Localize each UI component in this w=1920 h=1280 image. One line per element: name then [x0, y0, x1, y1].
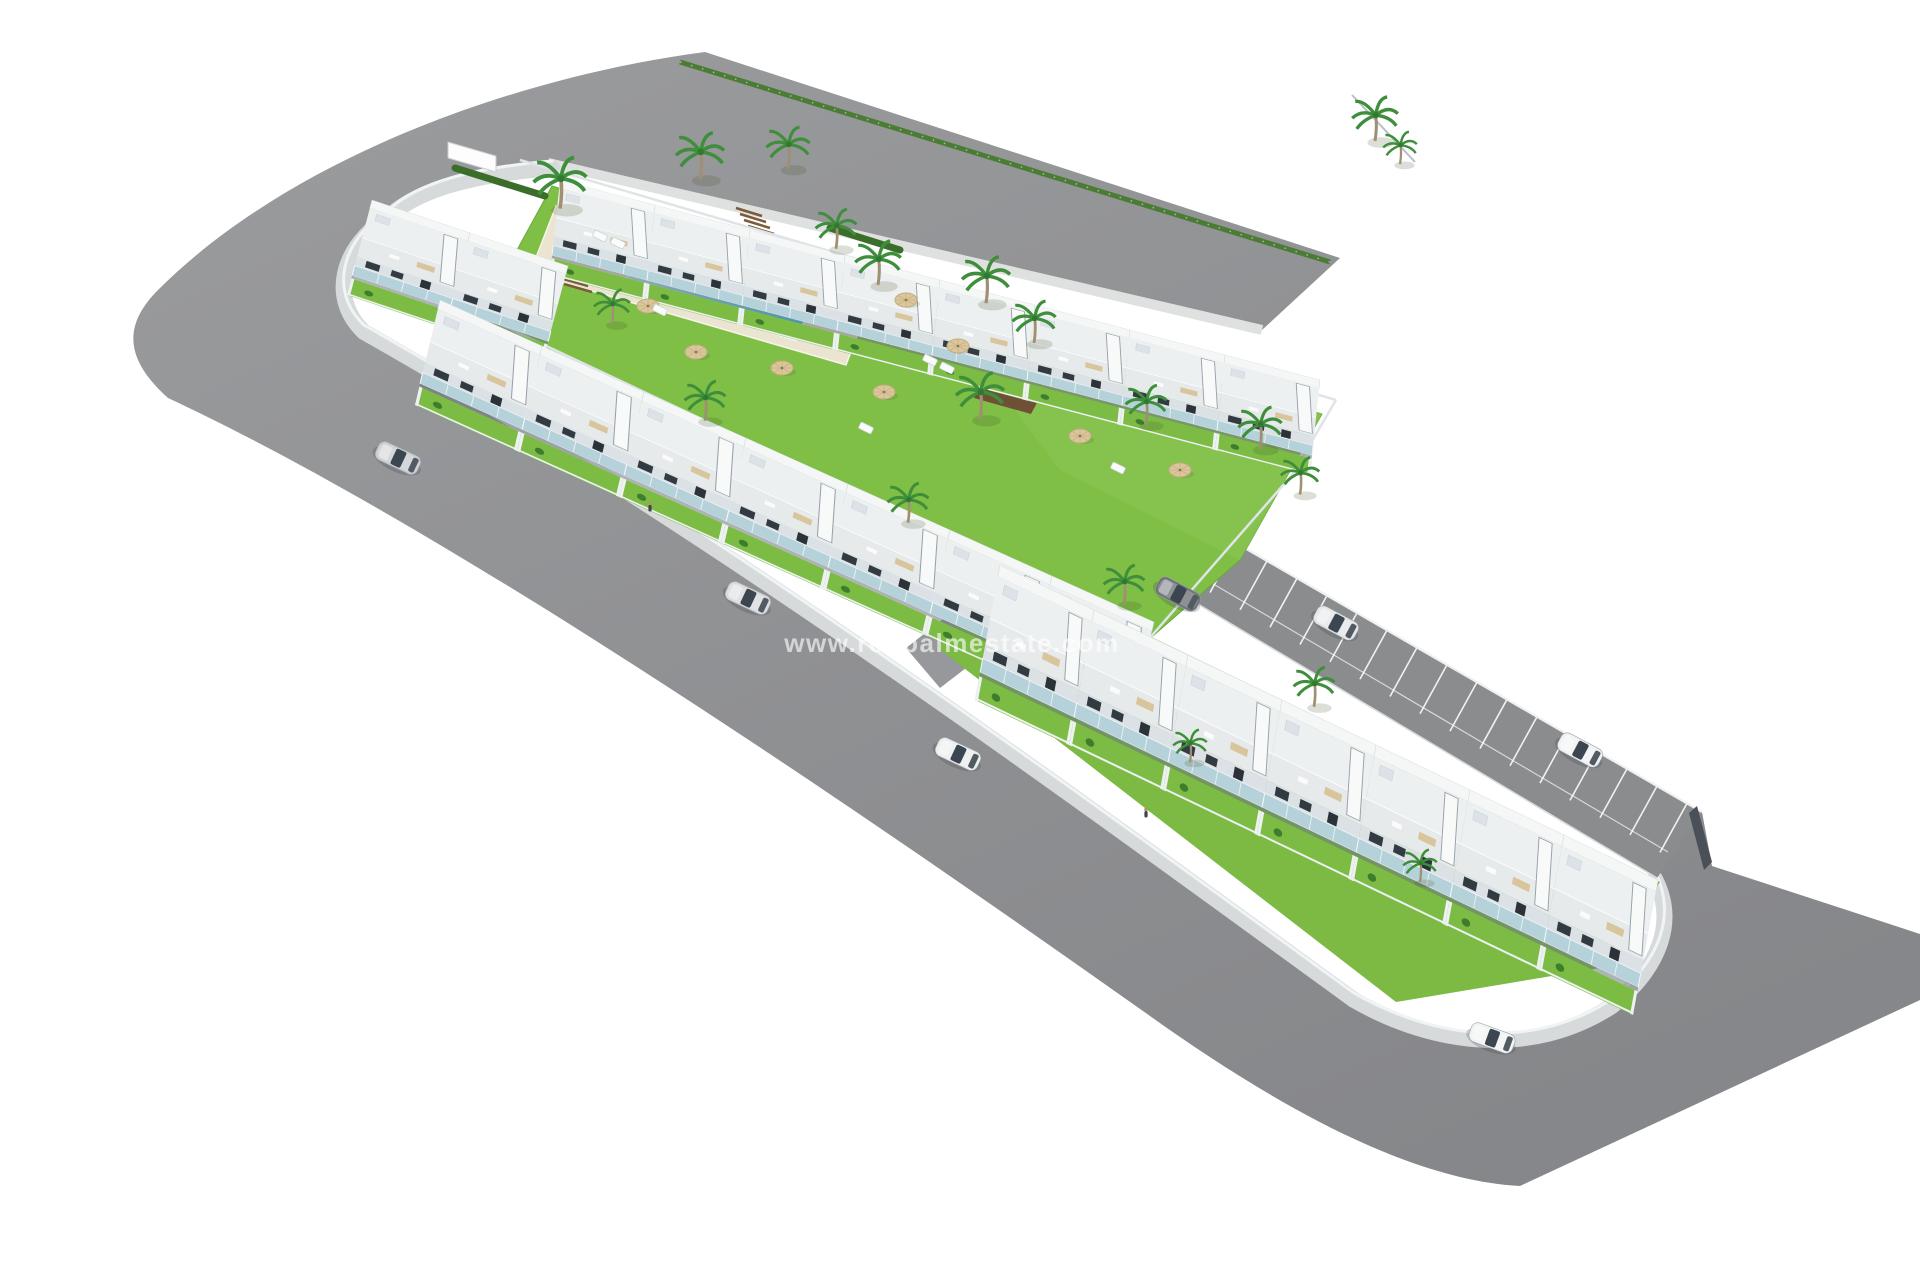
person	[648, 502, 652, 512]
person	[1144, 808, 1148, 818]
watermark: www.redpalmestate.com	[783, 628, 1119, 658]
site-plan-render: www.redpalmestate.com	[0, 0, 1920, 1280]
screenshot-root: www.redpalmestate.com	[0, 0, 1920, 1280]
